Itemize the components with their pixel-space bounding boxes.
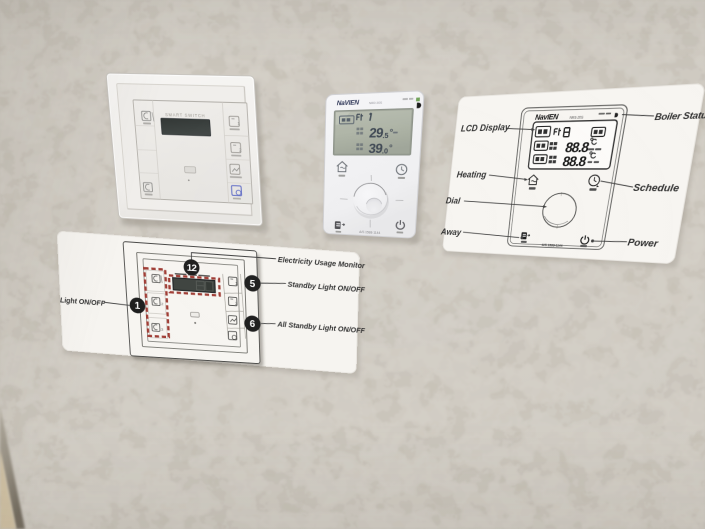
svg-text:Away: Away [439, 227, 462, 238]
svg-text:.0: .0 [382, 148, 389, 156]
svg-text:Heating: Heating [456, 169, 487, 180]
svg-text:12: 12 [187, 263, 198, 275]
svg-text:Standby Light ON/OFF: Standby Light ON/OFF [288, 280, 366, 295]
svg-text:Electricity Usage Monitor: Electricity Usage Monitor [278, 255, 366, 270]
svg-text:All Standby Light ON/OFF: All Standby Light ON/OFF [276, 320, 365, 335]
svg-text:Power: Power [627, 237, 660, 250]
svg-text:6: 6 [250, 319, 256, 330]
svg-text:LCD Display: LCD Display [460, 122, 511, 134]
svg-text:1: 1 [135, 301, 141, 312]
svg-text:Boiler Status: Boiler Status [654, 111, 705, 123]
svg-text:Light ON/OFF: Light ON/OFF [60, 296, 106, 308]
svg-text:Dial: Dial [445, 195, 461, 205]
svg-text:Schedule: Schedule [632, 182, 681, 194]
svg-text:NRD-30S: NRD-30S [369, 100, 382, 105]
svg-text:5: 5 [250, 279, 256, 290]
svg-text:NaVIEN: NaVIEN [337, 100, 360, 108]
svg-text:.5: .5 [382, 132, 389, 140]
